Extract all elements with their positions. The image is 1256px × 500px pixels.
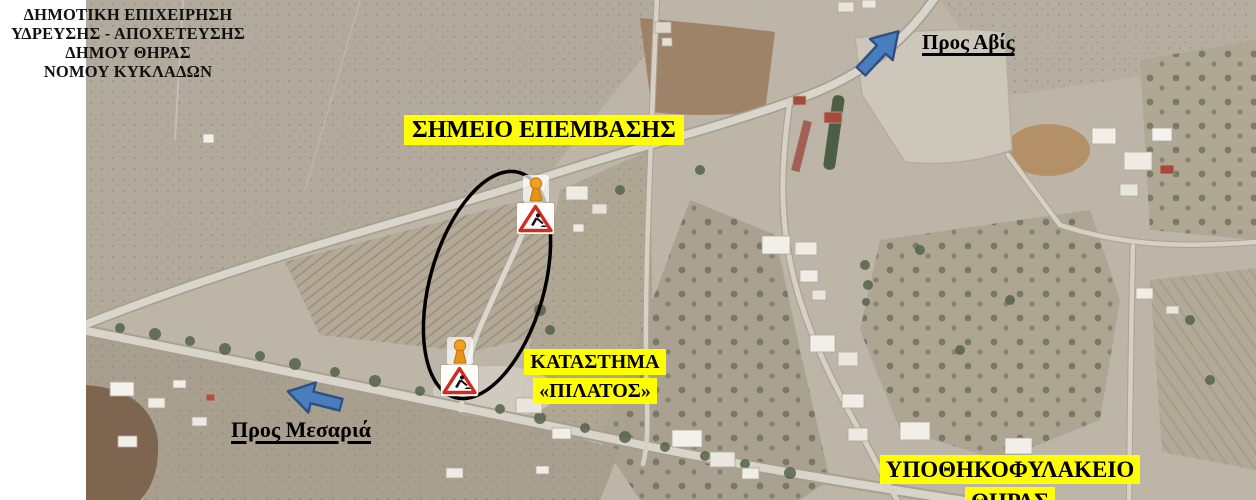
org-header-line-3: ΔΗΜΟΥ ΘΗΡΑΣ (2, 43, 254, 62)
registry-label-line-2: ΘΗΡΑΣ (965, 487, 1055, 500)
orange-warning-beacon-icon (523, 175, 549, 203)
direction-label-mesaria: Προς Μεσαριά (231, 417, 371, 443)
roadworks-warning-triangle-icon (441, 365, 478, 396)
registry-label: ΥΠΟΘΗΚΟΦΥΛΑΚΕΙΟ ΘΗΡΑΣ (880, 455, 1140, 500)
roadworks-sign-marker-north (517, 175, 554, 234)
org-header-line-1: ΔΗΜΟΤΙΚΗ ΕΠΙΧΕΙΡΗΣΗ (2, 5, 254, 24)
intervention-point-label: ΣΗΜΕΙΟ ΕΠΕΜΒΑΣΗΣ (404, 115, 684, 145)
map-canvas: ΔΗΜΟΤΙΚΗ ΕΠΙΧΕΙΡΗΣΗ ΥΔΡΕΥΣΗΣ - ΑΠΟΧΕΤΕΥΣ… (0, 0, 1256, 500)
direction-arrow-northeast-icon (843, 16, 917, 86)
direction-arrow-west-icon (279, 376, 351, 420)
store-label-line-1: ΚΑΤΑΣΤΗΜΑ (524, 349, 665, 375)
org-header-line-4: ΝΟΜΟΥ ΚΥΚΛΑΔΩΝ (2, 62, 254, 81)
roadworks-warning-triangle-icon (517, 203, 554, 234)
store-label-line-2: «ΠΙΛΑΤΟΣ» (533, 378, 657, 404)
orange-warning-beacon-icon (447, 337, 473, 365)
direction-label-avis: Προς Αβίς (922, 30, 1015, 55)
roadworks-sign-marker-south (441, 337, 478, 396)
organization-header: ΔΗΜΟΤΙΚΗ ΕΠΙΧΕΙΡΗΣΗ ΥΔΡΕΥΣΗΣ - ΑΠΟΧΕΤΕΥΣ… (2, 5, 254, 81)
store-label: ΚΑΤΑΣΤΗΜΑ «ΠΙΛΑΤΟΣ» (510, 349, 680, 404)
org-header-line-2: ΥΔΡΕΥΣΗΣ - ΑΠΟΧΕΤΕΥΣΗΣ (2, 24, 254, 43)
registry-label-line-1: ΥΠΟΘΗΚΟΦΥΛΑΚΕΙΟ (880, 455, 1140, 484)
